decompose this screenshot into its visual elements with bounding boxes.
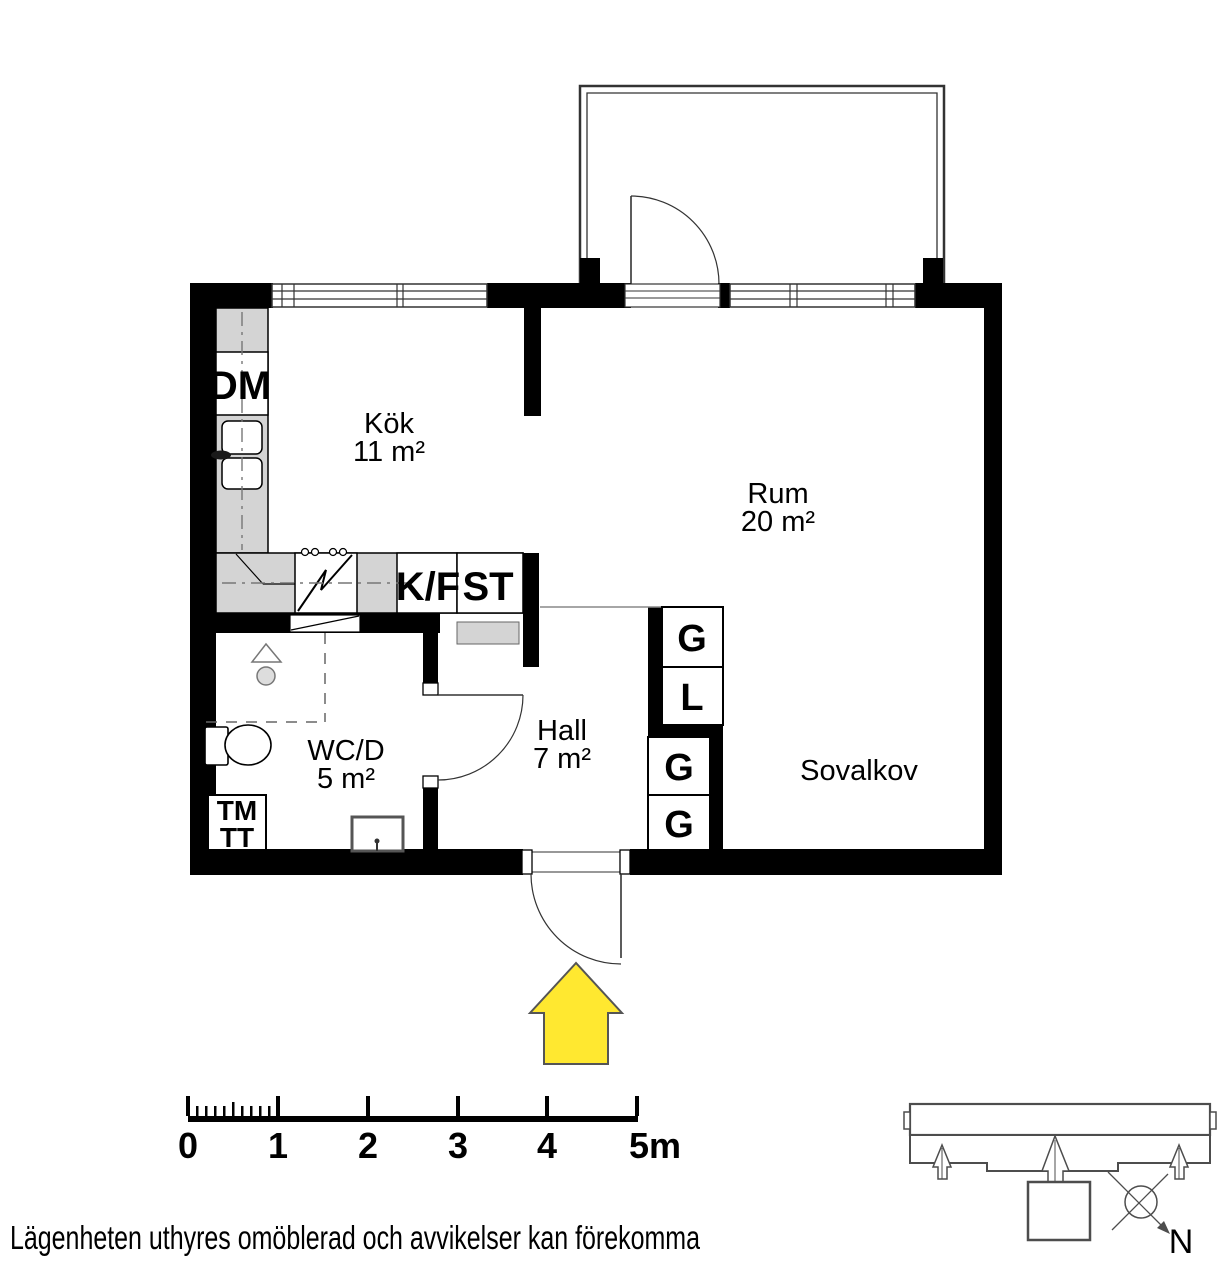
scale-tick-label: 4 — [537, 1125, 557, 1166]
shower-icon — [206, 633, 325, 722]
kitchen-room-divider-wall — [524, 308, 541, 416]
fridge-freezer-label: K/F — [396, 565, 460, 609]
livingroom-window — [730, 284, 915, 307]
room-area-hall: 7 m² — [533, 743, 591, 775]
scale-tick-label: 2 — [358, 1125, 378, 1166]
stove-icon — [295, 549, 357, 614]
storage-label: ST — [462, 565, 513, 609]
north-label: N — [1169, 1223, 1194, 1261]
toilet-icon — [205, 725, 271, 765]
floor-plan-drawing: Kök 11 m² Rum 20 m² WC/D 5 m² Hall 7 m² … — [0, 0, 1223, 1263]
scale-bar: 0 1 2 3 4 5m — [178, 1096, 681, 1166]
scale-tick-label: 1 — [268, 1125, 288, 1166]
kitchen-window — [272, 284, 487, 307]
wall-hatch — [290, 615, 360, 632]
compass-icon — [1108, 1172, 1170, 1234]
entry-arrow-icon — [530, 963, 622, 1064]
balcony-door-threshold — [625, 284, 720, 307]
site-plan — [904, 1104, 1216, 1240]
wardrobe-label: G — [664, 747, 694, 789]
floor-plan-page: Kök 11 m² Rum 20 m² WC/D 5 m² Hall 7 m² … — [0, 0, 1223, 1263]
dryer-label: TT — [220, 822, 254, 853]
dishwasher-label: DM — [209, 364, 271, 408]
washbasin-icon — [352, 817, 403, 851]
storage-side-wall — [523, 553, 539, 667]
hall-shelf — [457, 622, 519, 644]
scale-bar-minor-ticks — [196, 1102, 271, 1116]
linen-label: L — [680, 677, 703, 719]
wardrobe-label: G — [664, 804, 694, 846]
balcony — [580, 86, 944, 284]
scale-tick-label: 3 — [448, 1125, 468, 1166]
entrance-door — [522, 850, 630, 964]
balcony-door-swing-arc — [631, 196, 719, 284]
wc-door-swing-arc — [438, 695, 523, 780]
disclaimer-text: Lägenheten uthyres omöblerad och avvikel… — [10, 1219, 700, 1256]
entrance-door-swing-arc — [531, 874, 621, 964]
scale-tick-label: 0 — [178, 1125, 198, 1166]
scale-tick-label: 5m — [629, 1125, 681, 1166]
wc-door — [423, 683, 523, 788]
room-area-wcd: 5 m² — [317, 763, 375, 795]
room-area-kok: 11 m² — [353, 436, 425, 468]
room-area-rum: 20 m² — [741, 506, 815, 538]
room-label-sovalkov: Sovalkov — [800, 755, 918, 787]
site-annex-building — [1028, 1182, 1090, 1240]
wardrobe-label: G — [677, 618, 707, 660]
